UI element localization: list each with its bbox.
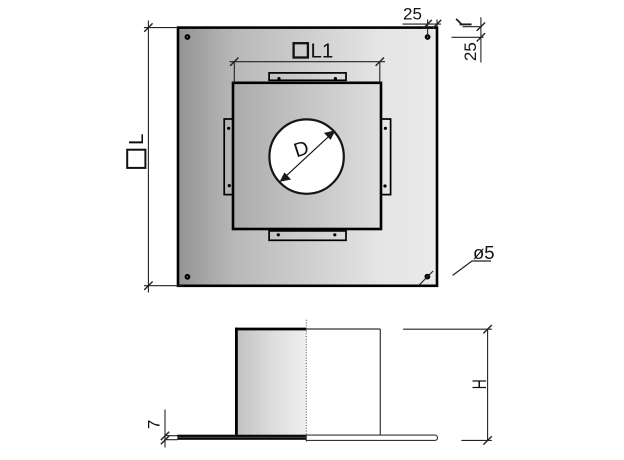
svg-text:L: L: [125, 134, 148, 145]
svg-text:7: 7: [145, 420, 164, 429]
svg-text:25: 25: [403, 4, 422, 23]
svg-text:L1: L1: [311, 39, 334, 62]
svg-text:H: H: [469, 379, 491, 389]
svg-text:ø5: ø5: [473, 242, 495, 263]
svg-text:25: 25: [461, 42, 480, 61]
